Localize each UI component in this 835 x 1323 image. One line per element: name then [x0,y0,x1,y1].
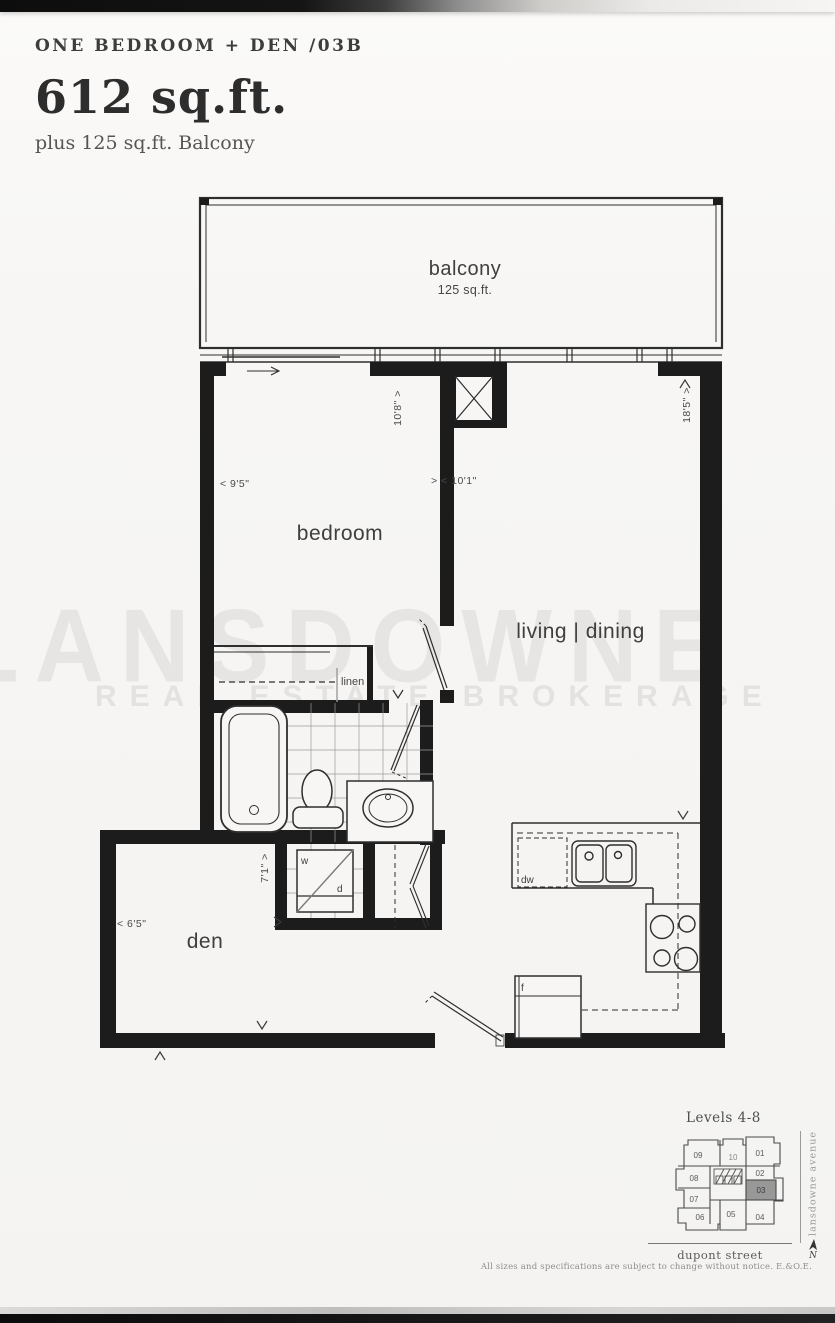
slide-arrow-icon [247,367,279,375]
dim-bedroom-width: < 9'5" [220,478,249,490]
den-label: den [170,930,240,954]
floor-plan: w d dw [95,190,735,1070]
dim-hall-depth: 7'1" > [259,846,271,890]
title-block: ONE BEDROOM + DEN /03B 612 sq.ft. plus 1… [35,36,363,154]
plan-balcony-note: plus 125 sq.ft. Balcony [35,132,363,154]
bedroom-door [419,619,447,690]
door-arrow-icon [393,690,403,698]
scan-edge-bottom [0,1314,835,1323]
vanity-sink [347,781,433,842]
watermark-side: condominiums [0,667,2,993]
laundry-closet: w d [287,844,363,918]
living-dining-label: living | dining [503,620,658,644]
disclaimer-text: All sizes and specifications are subject… [0,1262,812,1272]
kitchen: dw f [512,823,700,1038]
keyplan-levels-label: Levels 4-8 [686,1110,761,1126]
fridge: f [515,976,581,1038]
dryer-label: d [337,884,343,895]
keyplan-unit-04: 04 [756,1213,765,1222]
keyplan-unit-06: 06 [696,1213,705,1222]
bedroom-label: bedroom [280,522,400,546]
dupont-street-label: dupont street [648,1248,792,1262]
double-sink [572,841,636,886]
linen-closet [214,646,373,702]
balcony-label: balcony [395,258,535,281]
shaft [455,376,493,421]
dim-living-depth: 18'5" > [681,381,693,429]
keyplan-unit-09: 09 [694,1151,703,1160]
bathroom-door [391,690,420,779]
keyplan-unit-05: 05 [727,1210,736,1219]
north-arrow: N [806,1238,820,1261]
plan-area-title: 612 sq.ft. [35,70,363,124]
balcony-area-label: 125 sq.ft. [395,283,535,297]
lansdowne-avenue-line [800,1131,801,1243]
scan-edge-top [0,0,835,12]
fridge-label: f [521,983,524,994]
dishwasher-label: dw [521,875,535,886]
entry-closet [395,844,429,928]
linen-label: linen [341,676,364,688]
washer-label: w [300,856,309,867]
north-arrow-icon [806,1238,820,1251]
dim-bedroom-depth: 10'8" > [392,384,404,432]
keyplan-unit-07: 07 [690,1195,699,1204]
dim-den-width: < 6'5" [117,918,146,930]
keyplan-unit-01: 01 [756,1149,765,1158]
keyplan-unit-02: 02 [756,1169,765,1178]
keyplan-unit-08: 08 [690,1174,699,1183]
keyplan-unit-10: 10 [729,1153,738,1162]
plan-code-title: ONE BEDROOM + DEN /03B [35,36,363,56]
dim-living-width: > < 10'1" [431,475,477,487]
balcony-label-group: balcony 125 sq.ft. [395,258,535,297]
lansdowne-avenue-label: lansdowne avenue [808,1129,819,1239]
toilet [293,770,343,828]
north-label: N [806,1251,820,1261]
bathtub [221,706,287,832]
dupont-street-line [648,1243,792,1244]
stove [646,904,700,972]
keyplan-unit-03: 03 [757,1186,766,1195]
keyplan-core [714,1169,742,1184]
entry-door [425,992,504,1046]
scan-smudge-bottom [0,1307,835,1314]
keyplan-building: 09 10 01 08 02 03 07 06 05 04 [648,1128,818,1246]
